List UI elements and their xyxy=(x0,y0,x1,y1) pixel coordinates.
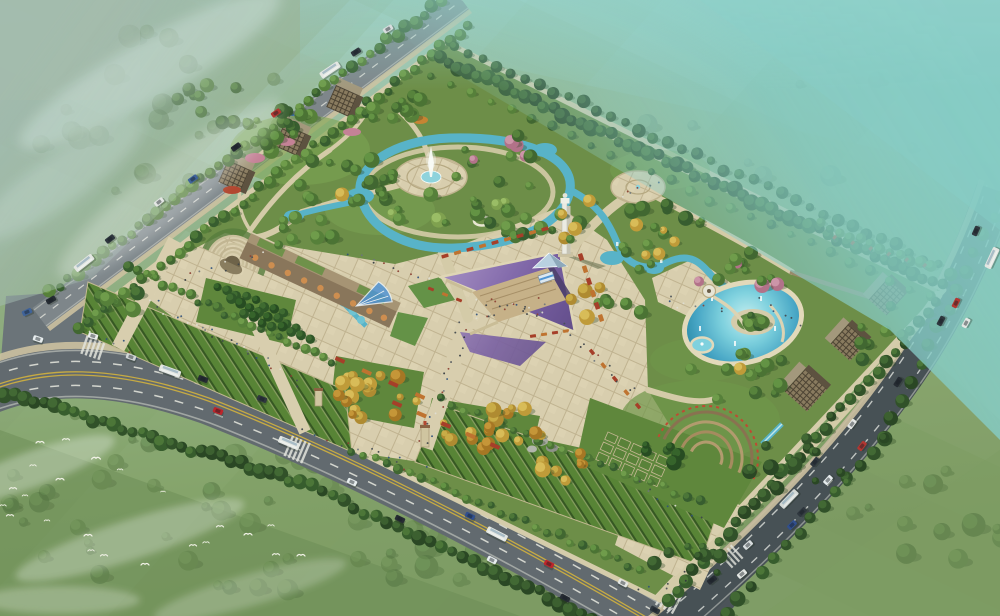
color-cast xyxy=(0,0,1000,616)
aerial-park-rendering xyxy=(0,0,1000,616)
